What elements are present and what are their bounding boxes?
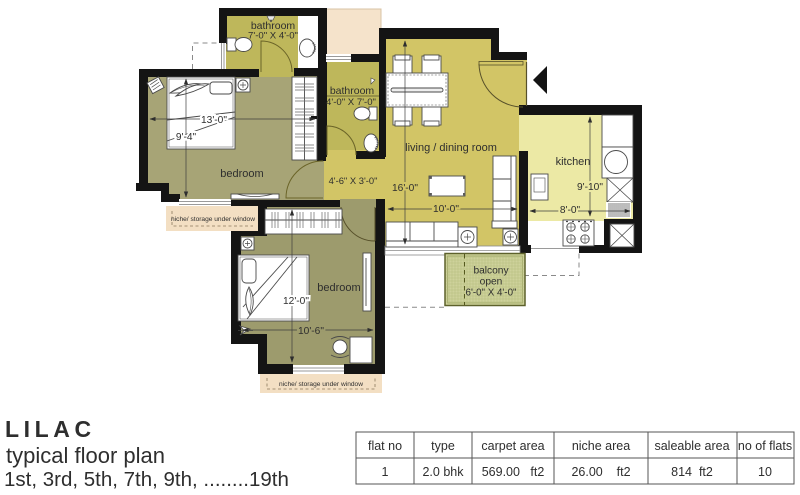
- svg-text:13'-0": 13'-0": [201, 115, 227, 126]
- svg-text:LILAC: LILAC: [5, 416, 96, 442]
- svg-text:814 ft2: 814 ft2: [671, 465, 713, 479]
- svg-text:typical floor plan: typical floor plan: [6, 443, 165, 468]
- svg-text:2.0 bhk: 2.0 bhk: [422, 465, 464, 479]
- svg-text:7'-0" X 4'-0": 7'-0" X 4'-0": [248, 31, 298, 42]
- svg-text:10'-0": 10'-0": [433, 204, 459, 215]
- svg-text:flat no: flat no: [368, 439, 402, 453]
- svg-text:no of flats: no of flats: [738, 439, 792, 453]
- svg-text:10: 10: [758, 465, 772, 479]
- svg-text:bedroom: bedroom: [317, 282, 360, 294]
- svg-text:26.00 ft2: 26.00 ft2: [571, 465, 630, 479]
- svg-text:saleable area: saleable area: [654, 439, 729, 453]
- svg-text:4'-0" X 7'-0": 4'-0" X 7'-0": [326, 97, 376, 108]
- svg-text:4'-6" X 3'-0": 4'-6" X 3'-0": [329, 175, 378, 186]
- svg-text:balcony: balcony: [473, 266, 509, 277]
- svg-text:9'-10": 9'-10": [577, 182, 603, 193]
- svg-text:open: open: [480, 277, 503, 288]
- svg-text:kitchen: kitchen: [556, 156, 591, 168]
- svg-text:niche area: niche area: [572, 439, 630, 453]
- svg-text:6'-0" X 4'-0": 6'-0" X 4'-0": [466, 288, 518, 299]
- svg-text:8'-0": 8'-0": [560, 205, 581, 216]
- svg-text:12'-0": 12'-0": [283, 296, 309, 307]
- svg-text:9'-4": 9'-4": [176, 132, 197, 143]
- svg-text:bedroom: bedroom: [220, 168, 263, 180]
- svg-text:1: 1: [382, 465, 389, 479]
- svg-text:niche/ storage under window: niche/ storage under window: [279, 381, 363, 388]
- svg-text:16'-0": 16'-0": [392, 183, 418, 194]
- svg-text:living / dining room: living / dining room: [405, 142, 497, 154]
- svg-text:bathroom: bathroom: [330, 85, 375, 97]
- svg-text:1st, 3rd, 5th, 7th, 9th, .....: 1st, 3rd, 5th, 7th, 9th, ........19th: [4, 468, 289, 491]
- svg-text:type: type: [431, 439, 455, 453]
- svg-text:10'-6": 10'-6": [298, 326, 324, 337]
- svg-text:569.00 ft2: 569.00 ft2: [482, 465, 545, 479]
- svg-text:carpet area: carpet area: [481, 439, 544, 453]
- svg-text:niche/ storage under window: niche/ storage under window: [171, 216, 255, 223]
